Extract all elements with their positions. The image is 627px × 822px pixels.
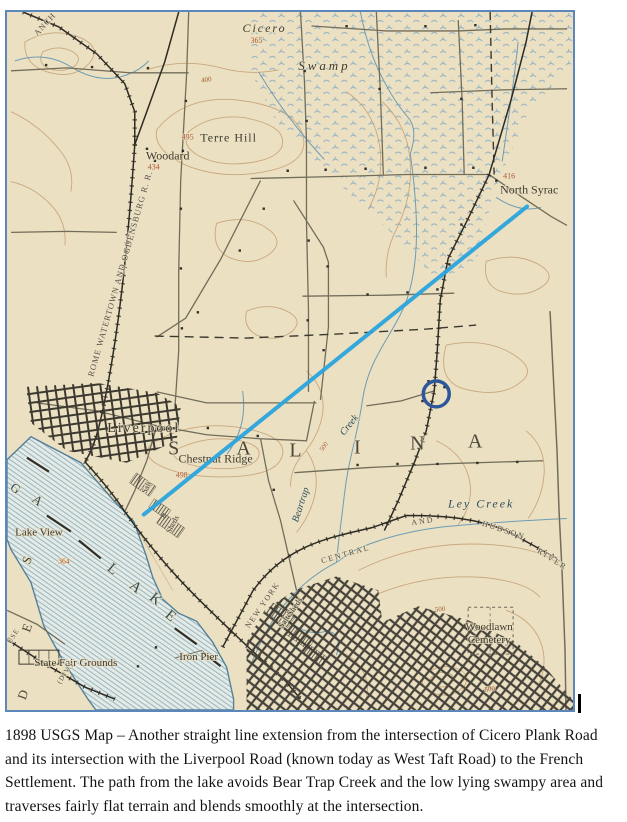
map-label-elev-495: 495 bbox=[182, 133, 194, 142]
map-label-salina-n: N bbox=[410, 433, 424, 455]
map-label-terre-hill: Terre Hill bbox=[200, 131, 257, 145]
map-label-salina-a2: A bbox=[468, 431, 483, 453]
map-label-woodlawn: Woodlawn bbox=[466, 621, 514, 633]
map-label-elev-400: 400 bbox=[201, 75, 213, 84]
text-cursor bbox=[578, 694, 581, 713]
map-label-iron-pier: Iron Pier bbox=[179, 651, 218, 663]
map-label-cicero: Cicero bbox=[242, 21, 286, 35]
usgs-map-image[interactable]: Cicero365Swamp400Terre Hill495Woodard434… bbox=[5, 10, 575, 712]
map-label-salina-s: S bbox=[168, 438, 179, 460]
map-label-elev-416: 416 bbox=[503, 172, 515, 181]
map-canvas: Cicero365Swamp400Terre Hill495Woodard434… bbox=[7, 12, 573, 710]
map-label-elev-365: 365 bbox=[251, 36, 263, 45]
map-label-woodard: Woodard bbox=[146, 149, 190, 163]
map-label-elev-364: 364 bbox=[58, 556, 69, 565]
map-caption: 1898 USGS Map – Another straight line ex… bbox=[5, 724, 623, 818]
map-label-state-fair-grounds: State Fair Grounds bbox=[34, 657, 117, 669]
map-label-swamp: Swamp bbox=[298, 58, 350, 73]
map-label-liverpool: Liverpool bbox=[107, 421, 180, 436]
map-label-cemetery: Cemetery bbox=[468, 634, 511, 646]
map-label-lake-view: Lake View bbox=[15, 527, 63, 539]
map-label-elev-434: 434 bbox=[148, 163, 160, 172]
map-label-salina-a1: A bbox=[236, 438, 251, 460]
map-label-ley-creek: Ley Creek bbox=[447, 497, 514, 511]
document-page: { "map": { "frame_color": "#5b87bb", "pa… bbox=[0, 0, 627, 822]
map-label-salina-i: I bbox=[354, 437, 361, 459]
map-label-salina-l: L bbox=[289, 440, 301, 462]
map-label-elev-500-a: 500 bbox=[435, 605, 447, 614]
map-label-north-syracuse: North Syrac bbox=[500, 182, 558, 196]
